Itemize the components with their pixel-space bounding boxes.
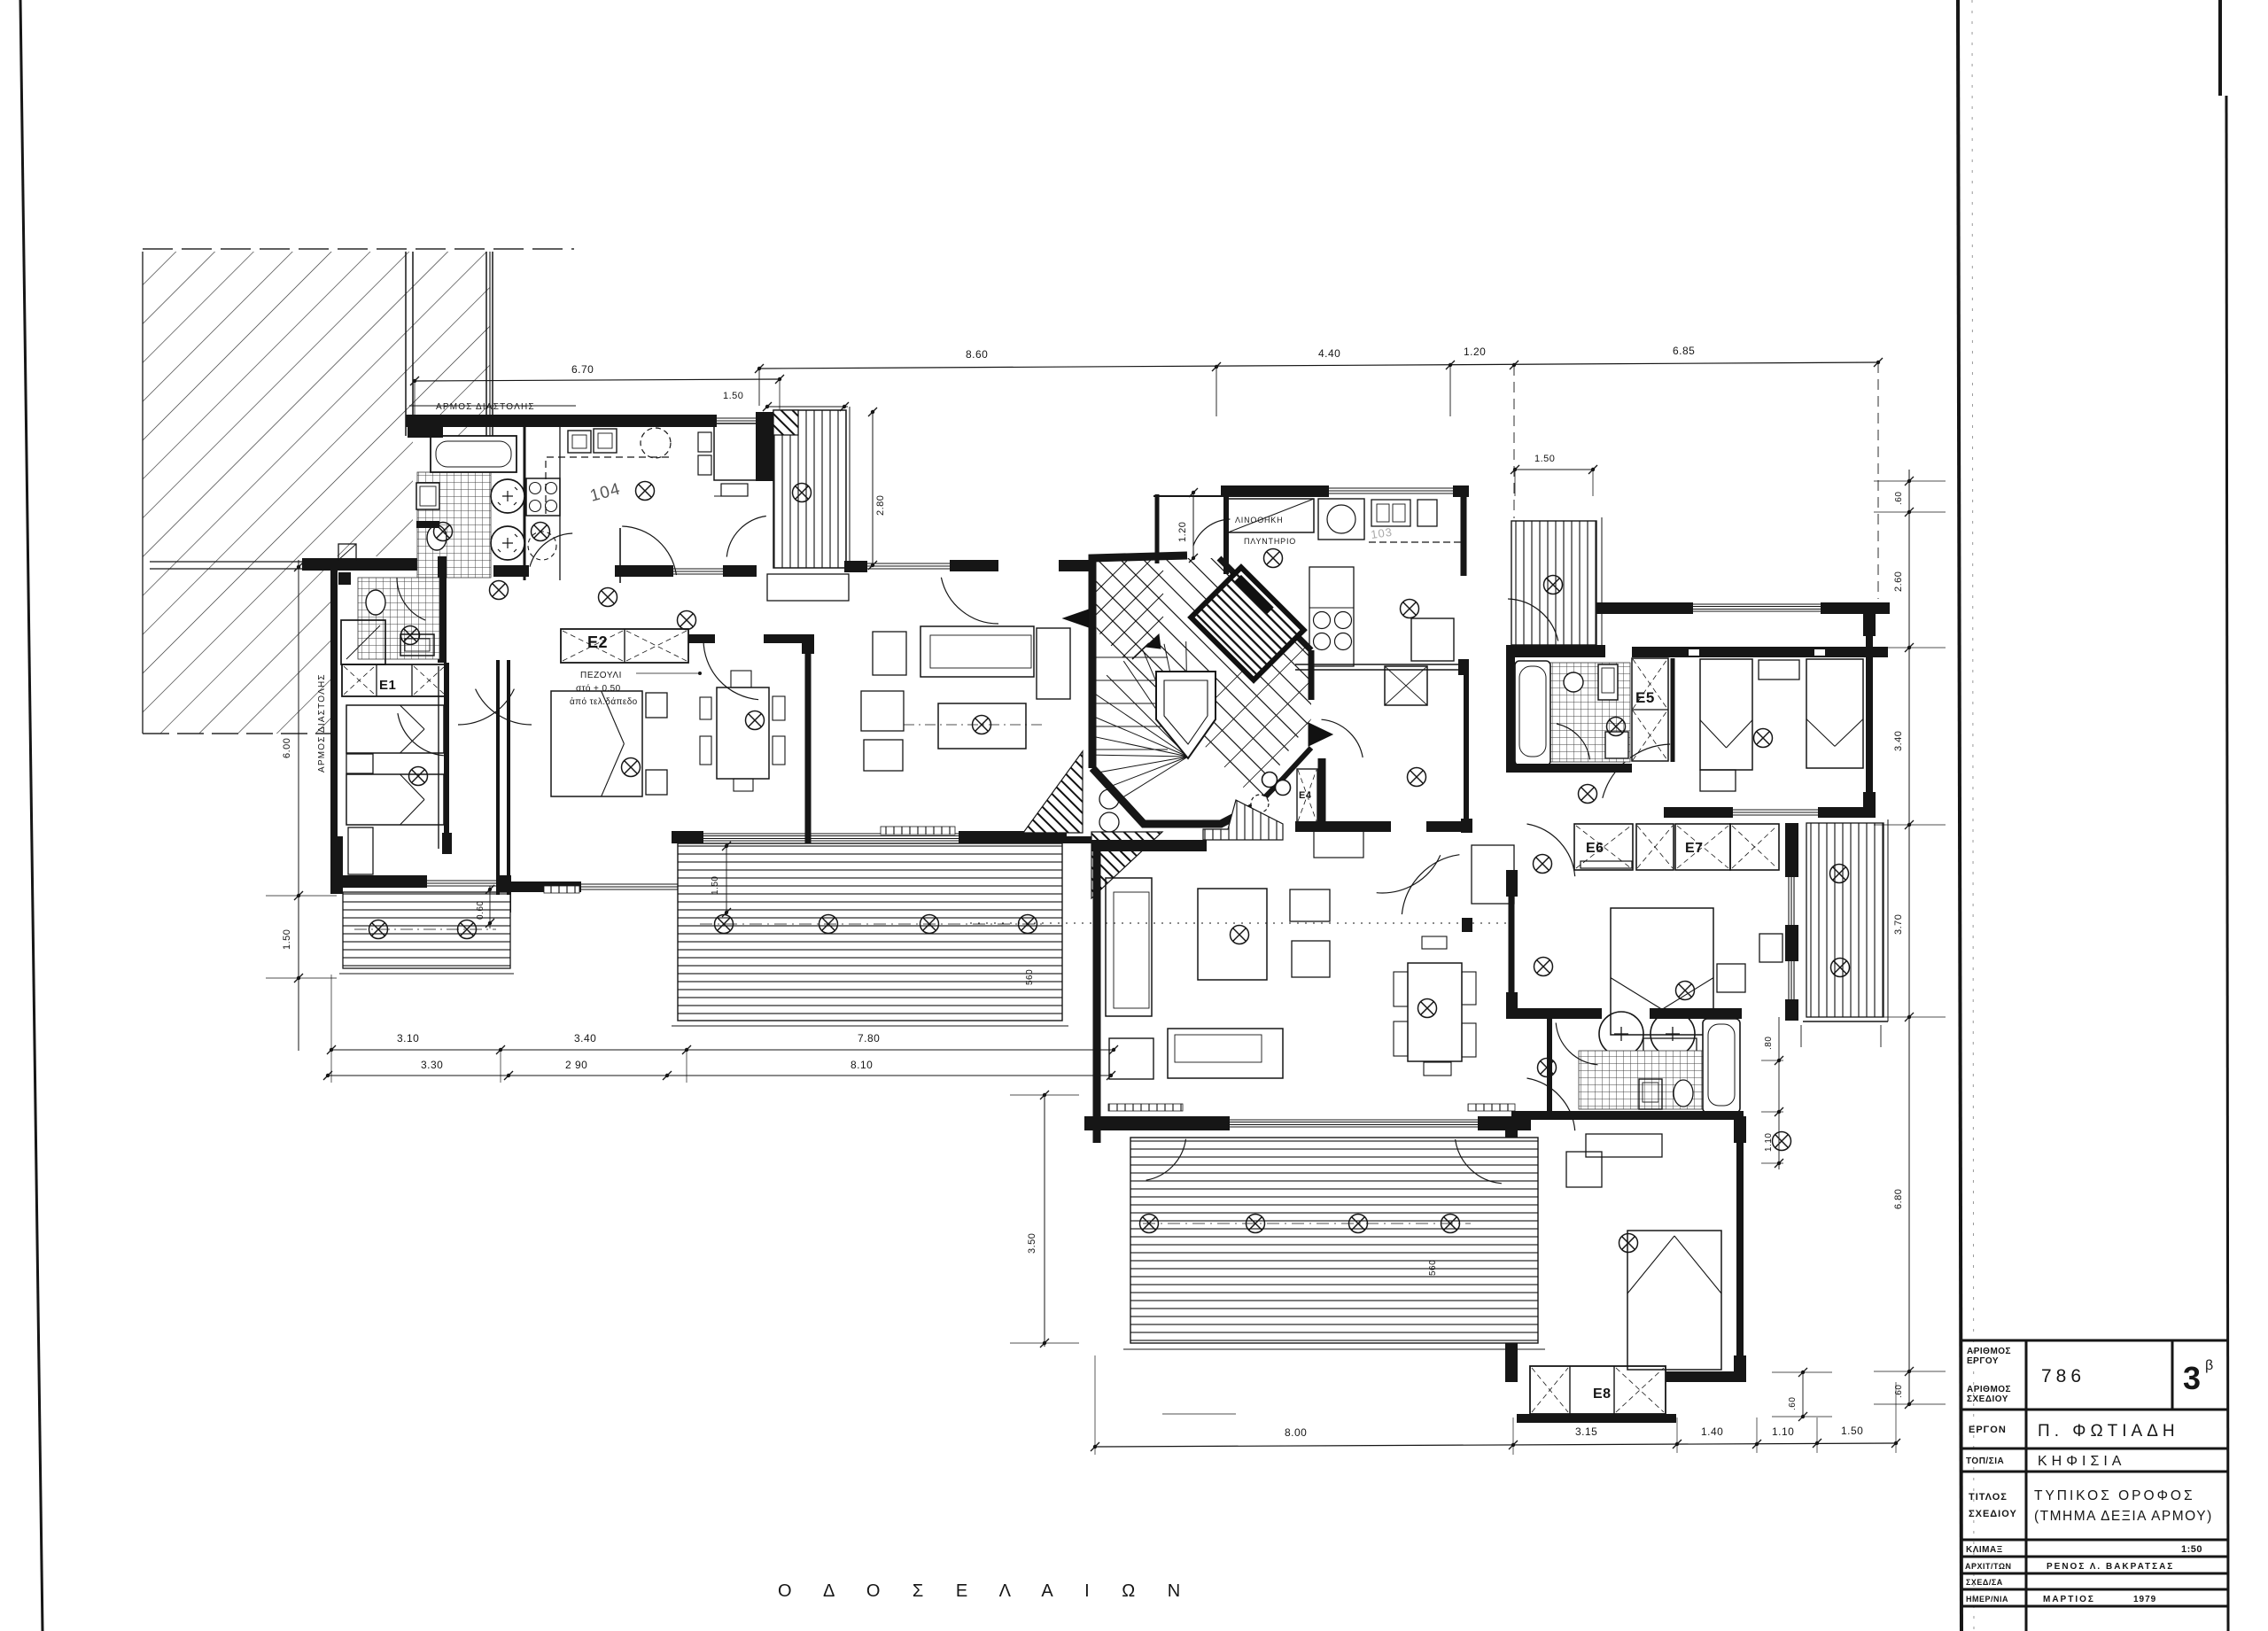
svg-text:7.80: 7.80 [858, 1032, 880, 1045]
svg-text:Ε4: Ε4 [1299, 790, 1312, 801]
svg-text:ΠΛΥΝΤΗΡΙΟ: ΠΛΥΝΤΗΡΙΟ [1244, 537, 1296, 546]
svg-text:ΣΧΕΔΙΟΥ: ΣΧΕΔΙΟΥ [1967, 1394, 2008, 1404]
svg-text:ΕΡΓΟΥ: ΕΡΓΟΥ [1967, 1356, 1999, 1366]
svg-text:ΗΜΕΡ/ΝΙΑ: ΗΜΕΡ/ΝΙΑ [1966, 1595, 2008, 1604]
svg-text:8.60: 8.60 [966, 348, 988, 361]
svg-text:Ο Δ Ο Σ Ε Λ Α Ι Ω Ν: Ο Δ Ο Σ Ε Λ Α Ι Ω Ν [778, 1581, 1194, 1601]
svg-text:560: 560 [1025, 969, 1035, 985]
svg-text:Ε7: Ε7 [1685, 841, 1704, 856]
svg-text:6.85: 6.85 [1673, 345, 1695, 357]
svg-text:.60: .60 [1788, 1397, 1798, 1410]
svg-text:1:50: 1:50 [2181, 1544, 2202, 1555]
svg-text:3.40: 3.40 [1893, 731, 1904, 751]
svg-text:0.60: 0.60 [476, 901, 485, 920]
svg-text:ΑΡΜΟΣ ΔΙΑΣΤΟΛΗΣ: ΑΡΜΟΣ ΔΙΑΣΤΟΛΗΣ [436, 402, 535, 412]
svg-text:1.50: 1.50 [723, 391, 743, 401]
svg-text:2.80: 2.80 [875, 495, 886, 516]
svg-text:ΣΧΕΔΙΟΥ: ΣΧΕΔΙΟΥ [1969, 1509, 2017, 1519]
svg-text:1.50: 1.50 [1841, 1425, 1863, 1437]
svg-text:ΣΧΕΔ/ΣΑ: ΣΧΕΔ/ΣΑ [1966, 1578, 2003, 1587]
svg-text:1.50: 1.50 [1534, 454, 1555, 464]
svg-text:.60: .60 [1894, 492, 1904, 505]
svg-text:3.30: 3.30 [421, 1059, 443, 1071]
svg-text:1.20: 1.20 [1464, 346, 1486, 358]
svg-text:8.00: 8.00 [1285, 1426, 1307, 1439]
svg-text:3.10: 3.10 [397, 1032, 419, 1045]
svg-text:3.50: 3.50 [1027, 1233, 1037, 1254]
svg-text:Ε6: Ε6 [1586, 841, 1604, 856]
svg-text:ΠΕΖΟΥΛΙ: ΠΕΖΟΥΛΙ [580, 671, 622, 680]
svg-text:Ε5: Ε5 [1635, 689, 1655, 706]
svg-text:1.10: 1.10 [1772, 1425, 1794, 1438]
svg-text:6.00: 6.00 [282, 738, 292, 758]
svg-text:1.50: 1.50 [282, 929, 292, 950]
svg-text:3: 3 [2183, 1360, 2202, 1396]
svg-text:.80: .80 [1764, 1037, 1774, 1050]
svg-text:1.20: 1.20 [1177, 522, 1188, 542]
svg-text:Ε8: Ε8 [1593, 1386, 1612, 1402]
svg-text:ΤΟΠ/ΣΙΑ: ΤΟΠ/ΣΙΑ [1966, 1456, 2004, 1466]
svg-text:Ε2: Ε2 [587, 633, 608, 651]
svg-text:Ε1: Ε1 [379, 678, 396, 693]
svg-text:στό + 0.50: στό + 0.50 [576, 683, 621, 694]
svg-text:ΑΡΜΟΣ ΔΙΑΣΤΟΛΗΣ: ΑΡΜΟΣ ΔΙΑΣΤΟΛΗΣ [317, 673, 327, 773]
svg-text:3.70: 3.70 [1893, 914, 1904, 935]
svg-text:ἀπό τελ.δάπεδο: ἀπό τελ.δάπεδο [570, 696, 638, 707]
svg-text:ΑΡΧΙΤ/ΤΩΝ: ΑΡΧΙΤ/ΤΩΝ [1965, 1562, 2012, 1571]
svg-text:ΑΡΙΘΜΟΣ: ΑΡΙΘΜΟΣ [1967, 1347, 2011, 1356]
svg-text:8.10: 8.10 [850, 1059, 873, 1071]
svg-text:2 90: 2 90 [565, 1059, 587, 1071]
svg-text:ΜΑΡΤΙΟΣ: ΜΑΡΤΙΟΣ [2043, 1595, 2095, 1604]
svg-text:2.60: 2.60 [1893, 571, 1904, 592]
svg-text:1979: 1979 [2133, 1595, 2156, 1604]
svg-text:(ΤΜΗΜΑ ΔΕΞΙΑ ΑΡΜΟΥ): (ΤΜΗΜΑ ΔΕΞΙΑ ΑΡΜΟΥ) [2034, 1509, 2213, 1524]
svg-text:ΚΗΦΙΣΙΑ: ΚΗΦΙΣΙΑ [2038, 1454, 2125, 1469]
svg-text:ΕΡΓΟΝ: ΕΡΓΟΝ [1969, 1425, 2007, 1435]
svg-text:6.70: 6.70 [571, 363, 594, 376]
svg-text:6.80: 6.80 [1893, 1189, 1904, 1209]
svg-text:β: β [2205, 1358, 2214, 1373]
svg-text:ΤΙΤΛΟΣ: ΤΙΤΛΟΣ [1969, 1492, 2008, 1503]
svg-text:560: 560 [1428, 1260, 1438, 1276]
svg-text:3.40: 3.40 [574, 1032, 596, 1045]
svg-text:ΑΡΙΘΜΟΣ: ΑΡΙΘΜΟΣ [1967, 1385, 2011, 1394]
svg-text:ΤΥΠΙΚΟΣ ΟΡΟΦΟΣ: ΤΥΠΙΚΟΣ ΟΡΟΦΟΣ [2034, 1488, 2195, 1503]
svg-text:786: 786 [2041, 1366, 2085, 1386]
svg-text:ΚΛΙΜΑΞ: ΚΛΙΜΑΞ [1966, 1545, 2003, 1555]
svg-text:1.50: 1.50 [711, 876, 720, 895]
svg-text:4.40: 4.40 [1318, 347, 1340, 360]
svg-text:Π. ΦΩΤΙΑΔΗ: Π. ΦΩΤΙΑΔΗ [2038, 1422, 2179, 1441]
svg-text:ΡΕΝΟΣ Λ. ΒΑΚΡΑΤΣΑΣ: ΡΕΝΟΣ Λ. ΒΑΚΡΑΤΣΑΣ [2047, 1562, 2174, 1572]
svg-text:1.40: 1.40 [1701, 1425, 1723, 1438]
svg-text:3.15: 3.15 [1575, 1425, 1597, 1438]
svg-text:ΛΙΝΟΘΗΚΗ: ΛΙΝΟΘΗΚΗ [1235, 516, 1283, 524]
